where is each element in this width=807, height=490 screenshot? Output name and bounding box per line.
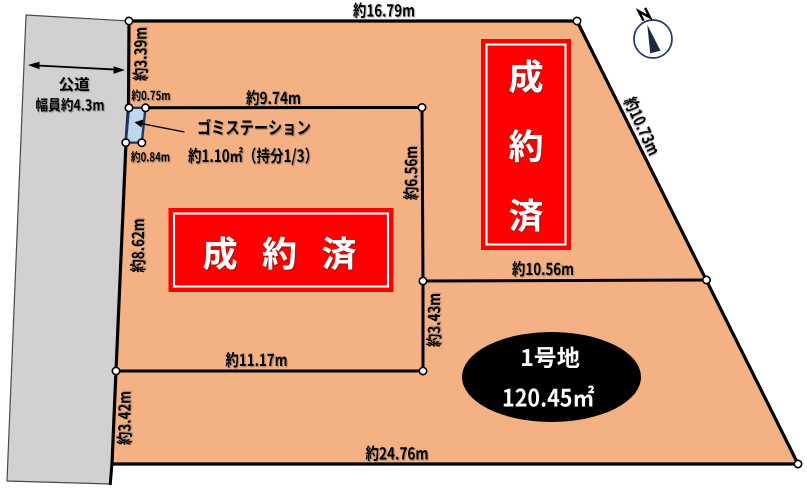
svg-text:約11.17m: 約11.17m: [226, 347, 288, 371]
svg-text:約24.76m: 約24.76m: [366, 441, 429, 465]
svg-text:120.45㎡: 120.45㎡: [502, 379, 594, 414]
svg-text:約9.74m: 約9.74m: [246, 85, 301, 109]
svg-text:約1.10㎡（持分1/3）: 約1.10㎡（持分1/3）: [188, 142, 318, 167]
svg-text:約3.43m: 約3.43m: [421, 293, 445, 347]
svg-text:約3.42m: 約3.42m: [112, 391, 136, 445]
svg-text:約6.56m: 約6.56m: [398, 146, 422, 200]
svg-text:1号地: 1号地: [520, 339, 580, 373]
svg-text:成: 成: [508, 50, 543, 101]
svg-text:幅員約4.3m: 幅員約4.3m: [36, 95, 105, 116]
svg-text:約8.62m: 約8.62m: [125, 219, 149, 273]
svg-text:約3.39m: 約3.39m: [128, 27, 152, 81]
svg-text:約16.79m: 約16.79m: [353, 0, 415, 22]
svg-text:約0.75m: 約0.75m: [131, 85, 171, 104]
svg-text:約0.84m: 約0.84m: [130, 147, 170, 166]
svg-text:済: 済: [508, 189, 543, 240]
svg-text:済: 済: [321, 227, 356, 278]
svg-text:成: 成: [202, 227, 237, 278]
svg-text:ゴミステーション: ゴミステーション: [197, 115, 311, 140]
svg-text:約10.56m: 約10.56m: [512, 256, 574, 280]
svg-text:約: 約: [262, 227, 297, 278]
svg-text:公道: 公道: [59, 73, 90, 95]
svg-text:約: 約: [508, 119, 543, 170]
